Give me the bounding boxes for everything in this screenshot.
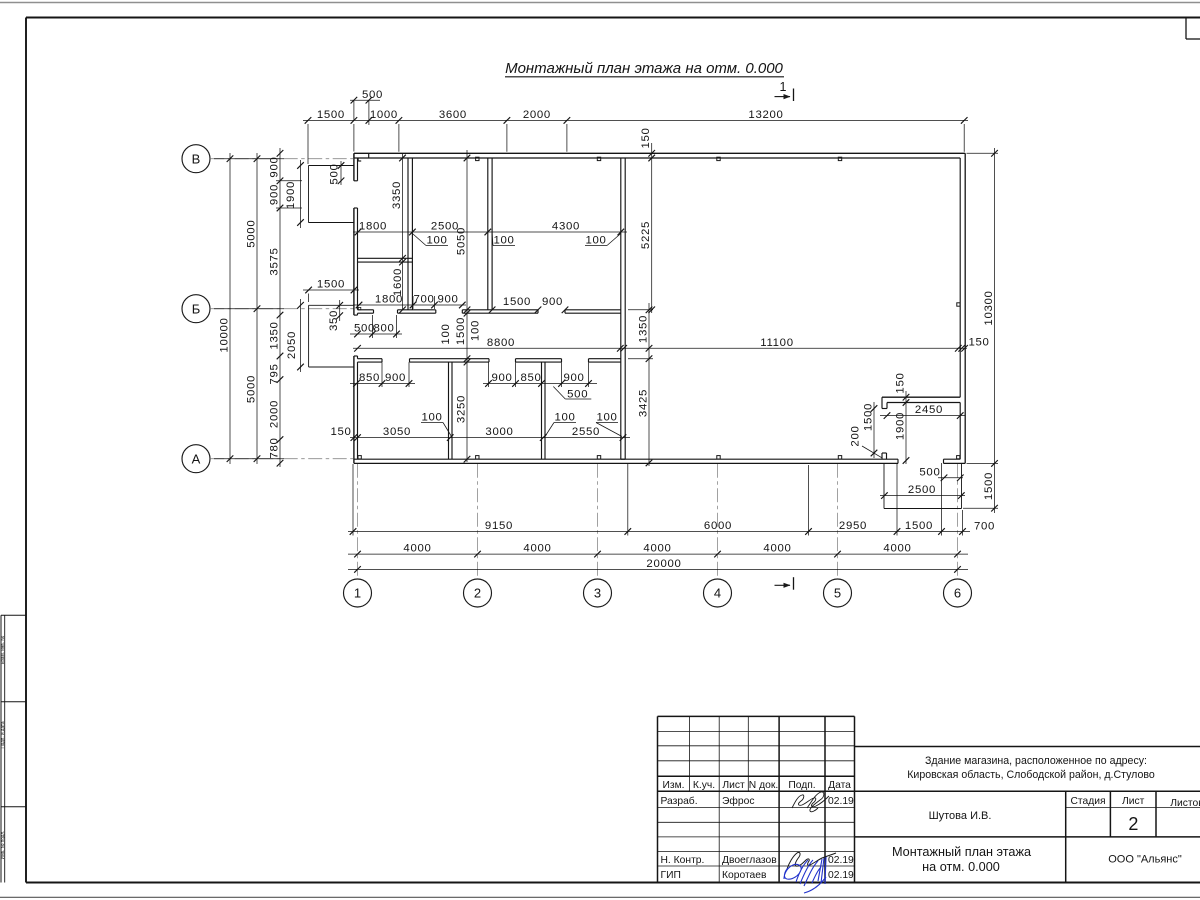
svg-text:500: 500 — [329, 163, 341, 184]
svg-text:2550: 2550 — [572, 426, 600, 438]
svg-text:1500: 1500 — [455, 317, 467, 345]
svg-text:150: 150 — [895, 372, 907, 393]
svg-text:ООО "Альянс": ООО "Альянс" — [1108, 853, 1182, 865]
svg-text:700: 700 — [974, 521, 995, 533]
svg-text:1350: 1350 — [638, 315, 650, 343]
svg-text:Здание магазина, расположенное: Здание магазина, расположенное по адресу… — [925, 755, 1147, 767]
svg-text:1500: 1500 — [983, 472, 995, 500]
svg-text:850: 850 — [359, 372, 380, 384]
svg-text:Монтажный план этажа: Монтажный план этажа — [892, 845, 1032, 859]
svg-text:2500: 2500 — [908, 484, 936, 496]
svg-text:4300: 4300 — [552, 221, 580, 233]
svg-text:3425: 3425 — [638, 389, 650, 417]
svg-text:780: 780 — [269, 437, 281, 458]
svg-text:200: 200 — [850, 425, 862, 446]
svg-text:4000: 4000 — [643, 543, 671, 555]
svg-text:900: 900 — [563, 372, 584, 384]
svg-text:2000: 2000 — [523, 109, 551, 121]
svg-text:3000: 3000 — [485, 426, 513, 438]
svg-text:на отм. 0.000: на отм. 0.000 — [922, 860, 1000, 874]
svg-text:Подп.: Подп. — [788, 780, 815, 791]
svg-text:500: 500 — [567, 388, 588, 400]
svg-text:Н. Контр.: Н. Контр. — [661, 855, 705, 866]
svg-text:3600: 3600 — [439, 109, 467, 121]
svg-text:9150: 9150 — [485, 520, 513, 532]
svg-text:02.19: 02.19 — [828, 855, 854, 866]
svg-text:02.19: 02.19 — [828, 870, 854, 881]
svg-text:Разраб.: Разраб. — [661, 795, 698, 807]
svg-text:850: 850 — [520, 372, 541, 384]
svg-text:4000: 4000 — [403, 543, 431, 555]
svg-text:900: 900 — [269, 184, 281, 205]
svg-text:900: 900 — [437, 294, 458, 306]
svg-text:В: В — [192, 151, 201, 166]
svg-text:Кировская область, Слободской: Кировская область, Слободской район, д.С… — [907, 769, 1155, 781]
svg-text:6000: 6000 — [704, 520, 732, 532]
svg-text:1800: 1800 — [375, 294, 403, 306]
svg-text:Инв. № подл.: Инв. № подл. — [0, 831, 5, 860]
svg-text:Дата: Дата — [828, 780, 851, 791]
svg-text:10000: 10000 — [219, 317, 231, 352]
svg-text:2: 2 — [1128, 814, 1138, 834]
svg-text:5000: 5000 — [246, 220, 258, 248]
svg-text:100: 100 — [596, 412, 617, 424]
svg-text:1: 1 — [780, 80, 787, 94]
svg-text:100: 100 — [470, 320, 482, 341]
svg-text:5050: 5050 — [456, 227, 468, 255]
svg-text:3350: 3350 — [391, 181, 403, 209]
svg-text:2000: 2000 — [269, 400, 281, 428]
svg-text:1000: 1000 — [370, 109, 398, 121]
svg-text:6: 6 — [954, 586, 961, 601]
svg-text:Двоеглазов: Двоеглазов — [722, 855, 777, 866]
svg-text:500: 500 — [354, 323, 375, 335]
svg-text:13200: 13200 — [748, 109, 783, 121]
svg-text:795: 795 — [269, 363, 281, 384]
svg-text:4000: 4000 — [523, 543, 551, 555]
svg-text:1500: 1500 — [863, 403, 875, 431]
svg-text:Б: Б — [192, 301, 201, 316]
svg-text:5000: 5000 — [246, 375, 258, 403]
svg-text:1900: 1900 — [285, 181, 297, 209]
svg-text:Эфрос: Эфрос — [722, 795, 754, 807]
svg-text:К.уч.: К.уч. — [693, 780, 715, 791]
svg-text:1350: 1350 — [269, 321, 281, 349]
svg-text:1500: 1500 — [503, 296, 531, 308]
svg-text:11100: 11100 — [760, 337, 793, 349]
svg-text:3: 3 — [594, 586, 601, 601]
svg-text:100: 100 — [440, 323, 452, 344]
svg-text:100: 100 — [493, 235, 514, 247]
svg-text:2950: 2950 — [839, 520, 867, 532]
svg-text:5225: 5225 — [640, 221, 652, 249]
svg-text:3250: 3250 — [456, 395, 468, 423]
svg-text:100: 100 — [554, 412, 575, 424]
svg-text:1500: 1500 — [317, 109, 345, 121]
svg-text:150: 150 — [968, 337, 989, 349]
svg-text:800: 800 — [373, 323, 394, 335]
svg-text:1500: 1500 — [317, 279, 345, 291]
svg-text:N док.: N док. — [749, 780, 778, 791]
svg-text:4000: 4000 — [763, 543, 791, 555]
svg-text:20000: 20000 — [646, 558, 681, 570]
svg-text:02.19: 02.19 — [828, 796, 854, 807]
svg-text:1900: 1900 — [895, 412, 907, 440]
svg-text:3575: 3575 — [269, 247, 281, 275]
svg-text:350: 350 — [328, 310, 340, 331]
svg-text:500: 500 — [362, 89, 383, 101]
svg-text:А: А — [192, 451, 201, 466]
svg-text:2: 2 — [474, 586, 481, 601]
svg-text:1800: 1800 — [359, 221, 387, 233]
svg-text:Подп. и дата: Подп. и дата — [0, 721, 5, 749]
svg-text:900: 900 — [542, 296, 563, 308]
svg-text:Монтажный план этажа на отм. 0: Монтажный план этажа на отм. 0.000 — [505, 60, 783, 77]
svg-text:900: 900 — [491, 372, 512, 384]
svg-text:1: 1 — [354, 586, 361, 601]
svg-text:Изм.: Изм. — [662, 780, 684, 791]
svg-text:900: 900 — [269, 156, 281, 177]
svg-text:700: 700 — [413, 294, 434, 306]
svg-text:Стадия: Стадия — [1070, 796, 1105, 807]
svg-text:Лист: Лист — [1122, 796, 1145, 807]
svg-text:150: 150 — [330, 426, 351, 438]
svg-text:1500: 1500 — [905, 520, 933, 532]
svg-text:Листов: Листов — [1170, 798, 1200, 809]
svg-text:ГИП: ГИП — [661, 870, 681, 881]
svg-text:Взам. инв. №: Взам. инв. № — [0, 636, 5, 665]
svg-text:Шутова И.В.: Шутова И.В. — [929, 810, 992, 822]
svg-text:Лист: Лист — [722, 780, 745, 791]
svg-text:2450: 2450 — [915, 404, 943, 416]
svg-text:150: 150 — [640, 127, 652, 148]
svg-text:3050: 3050 — [383, 426, 411, 438]
svg-text:2050: 2050 — [286, 331, 298, 359]
svg-text:500: 500 — [919, 466, 940, 478]
svg-text:Коротаев: Коротаев — [722, 870, 767, 881]
svg-text:1600: 1600 — [392, 268, 404, 296]
svg-text:100: 100 — [426, 235, 447, 247]
svg-text:5: 5 — [834, 586, 841, 601]
svg-text:100: 100 — [421, 412, 442, 424]
svg-text:8800: 8800 — [487, 337, 515, 349]
svg-text:900: 900 — [385, 372, 406, 384]
svg-text:4: 4 — [714, 586, 721, 601]
svg-text:10300: 10300 — [983, 290, 995, 325]
svg-text:100: 100 — [585, 235, 606, 247]
svg-text:4000: 4000 — [883, 543, 911, 555]
